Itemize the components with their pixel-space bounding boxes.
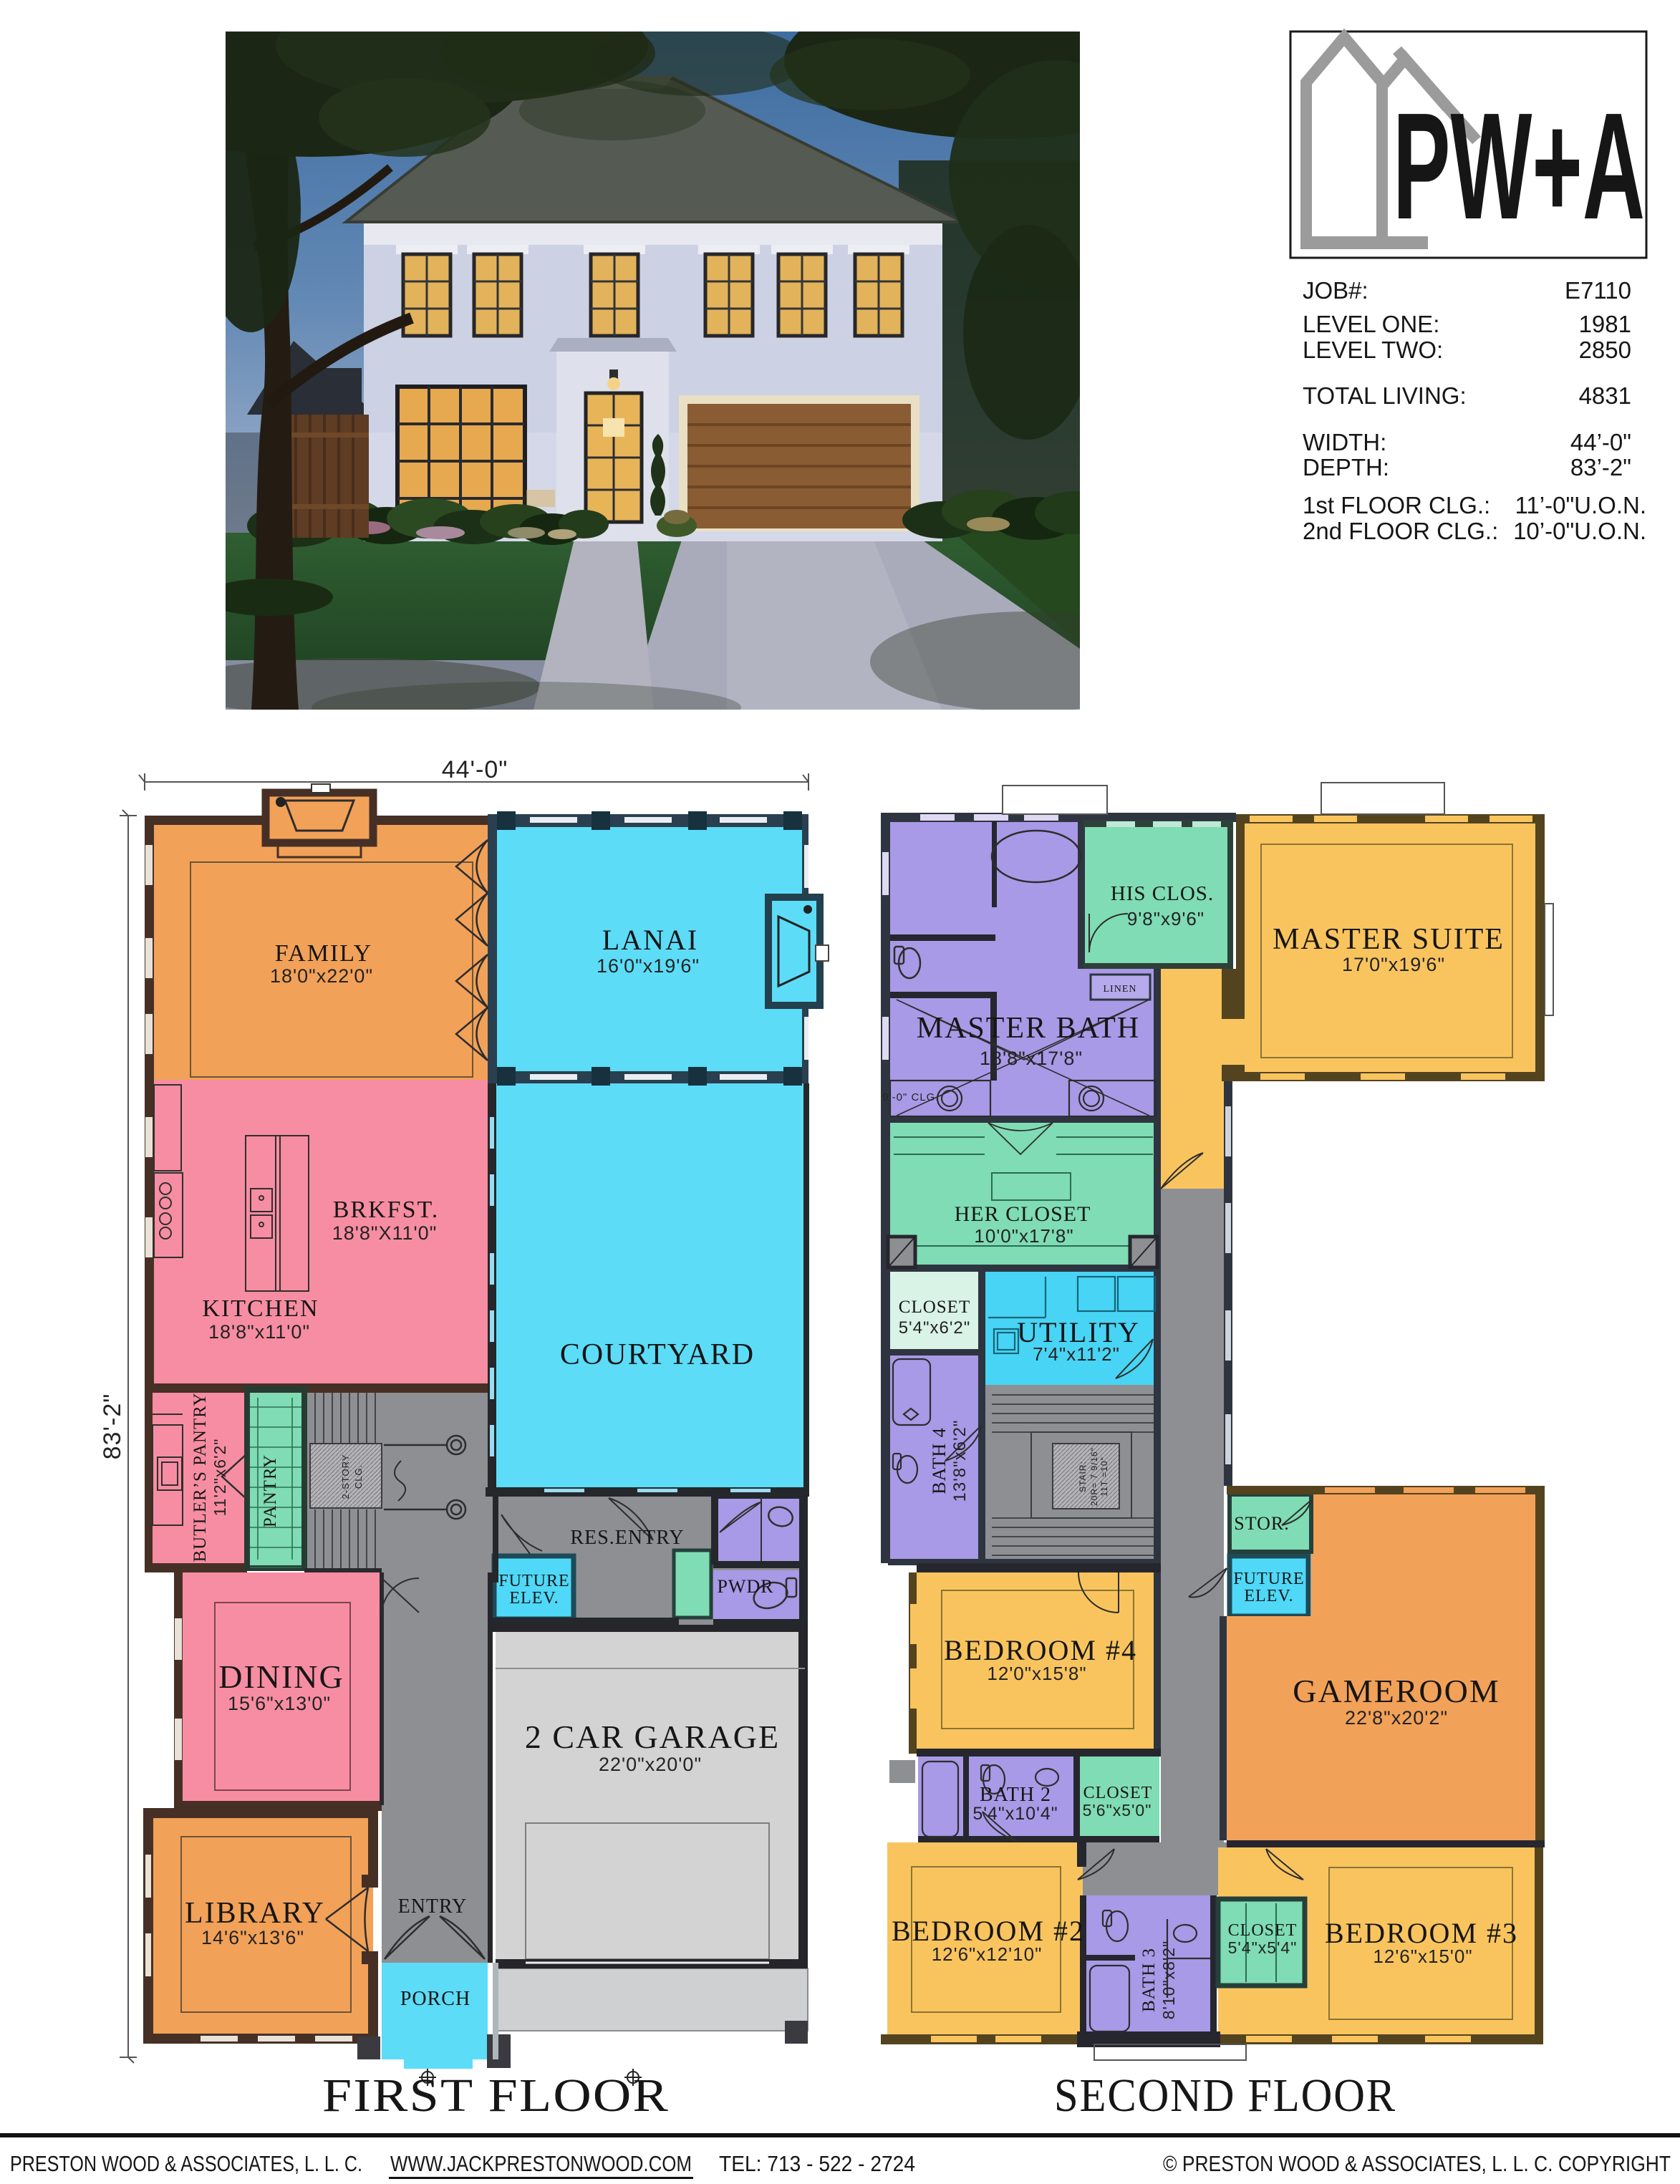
svg-text:BATH 4: BATH 4 <box>929 1427 950 1494</box>
svg-text:16'0"x19'6": 16'0"x19'6" <box>597 955 700 977</box>
svg-text:BUTLER’S PANTRY: BUTLER’S PANTRY <box>190 1392 210 1562</box>
svg-text:44’-0": 44’-0" <box>1570 429 1631 455</box>
svg-text:10’-0"U.O.N.: 10’-0"U.O.N. <box>1513 518 1646 544</box>
svg-text:44'-0": 44'-0" <box>442 756 508 783</box>
svg-text:PORCH: PORCH <box>400 1988 470 2010</box>
svg-text:12'6"x12'10": 12'6"x12'10" <box>932 1943 1043 1965</box>
svg-text:© PRESTON WOOD & ASSOCIATES, L: © PRESTON WOOD & ASSOCIATES, L. L. C. CO… <box>1163 2151 1671 2176</box>
svg-text:11T =10": 11T =10" <box>1099 1456 1109 1497</box>
svg-text:SECOND FLOOR: SECOND FLOOR <box>1054 2069 1396 2122</box>
svg-text:2 CAR GARAGE: 2 CAR GARAGE <box>525 1719 780 1755</box>
svg-text:12'6"x15'0": 12'6"x15'0" <box>1373 1946 1472 1967</box>
svg-text:20R= 7 9/16": 20R= 7 9/16" <box>1089 1447 1099 1506</box>
svg-text:LANAI: LANAI <box>602 924 698 956</box>
svg-text:MASTER BATH: MASTER BATH <box>917 1012 1141 1045</box>
svg-text:1981: 1981 <box>1579 311 1631 337</box>
svg-text:HIS CLOS.: HIS CLOS. <box>1111 882 1214 905</box>
svg-text:BEDROOM #3: BEDROOM #3 <box>1325 1917 1518 1949</box>
svg-text:18'0"x22'0": 18'0"x22'0" <box>270 965 373 987</box>
svg-text:HER CLOSET: HER CLOSET <box>955 1202 1091 1226</box>
svg-text:ENTRY: ENTRY <box>398 1895 468 1918</box>
svg-text:ELEV.: ELEV. <box>509 1589 559 1608</box>
svg-text:ELEV.: ELEV. <box>1244 1587 1293 1605</box>
svg-text:RES.ENTRY: RES.ENTRY <box>570 1527 684 1549</box>
svg-text:LEVEL ONE:: LEVEL ONE: <box>1303 311 1439 337</box>
svg-text:MASTER SUITE: MASTER SUITE <box>1273 923 1505 956</box>
svg-text:BRKFST.: BRKFST. <box>333 1197 439 1223</box>
svg-text:PWDR: PWDR <box>717 1576 773 1597</box>
svg-text:PANTRY: PANTRY <box>261 1454 280 1527</box>
svg-text:22'8"x20'2": 22'8"x20'2" <box>1345 1707 1448 1729</box>
svg-text:FAMILY: FAMILY <box>275 940 372 967</box>
svg-text:GAMEROOM: GAMEROOM <box>1293 1673 1500 1709</box>
svg-text:JOB#:: JOB#: <box>1303 277 1368 304</box>
svg-text:BEDROOM #2: BEDROOM #2 <box>892 1915 1085 1947</box>
svg-text:18'8"x17'8": 18'8"x17'8" <box>980 1048 1083 1069</box>
svg-text:STAIR:: STAIR: <box>1078 1461 1088 1492</box>
svg-text:1st FLOOR CLG.:: 1st FLOOR CLG.: <box>1303 492 1490 518</box>
svg-text:E7110: E7110 <box>1565 277 1631 304</box>
svg-text:LIBRARY: LIBRARY <box>185 1897 325 1930</box>
svg-text:TOTAL LIVING:: TOTAL LIVING: <box>1303 382 1467 409</box>
svg-text:LEVEL TWO:: LEVEL TWO: <box>1303 337 1443 363</box>
svg-text:CLOSET: CLOSET <box>899 1298 970 1317</box>
svg-text:FIRST FLOOR: FIRST FLOOR <box>322 2069 670 2122</box>
svg-text:KITCHEN: KITCHEN <box>202 1295 319 1322</box>
svg-text:18'8"X11'0": 18'8"X11'0" <box>332 1222 438 1244</box>
svg-text:WWW.JACKPRESTONWOOD.COM: WWW.JACKPRESTONWOOD.COM <box>390 2151 692 2176</box>
svg-text:13'8"x6'2": 13'8"x6'2" <box>950 1420 970 1502</box>
svg-text:8'10"x8'2": 8'10"x8'2" <box>1159 1941 1178 2020</box>
svg-text:83’-2": 83’-2" <box>1570 454 1631 480</box>
svg-text:PW+A: PW+A <box>1393 81 1645 251</box>
svg-text:83'-2": 83'-2" <box>99 1393 126 1460</box>
svg-text:5'6"x5'0": 5'6"x5'0" <box>1083 1801 1152 1820</box>
svg-text:FUTURE: FUTURE <box>498 1572 569 1590</box>
svg-text:CLOSET: CLOSET <box>1083 1784 1153 1802</box>
svg-text:12'0"x15'8": 12'0"x15'8" <box>987 1663 1086 1684</box>
svg-text:22'0"x20'0": 22'0"x20'0" <box>599 1754 702 1775</box>
svg-text:17'0"x19'6": 17'0"x19'6" <box>1342 954 1445 975</box>
svg-text:STOR.: STOR. <box>1234 1513 1290 1534</box>
svg-text:11'2"x6'2": 11'2"x6'2" <box>211 1439 229 1517</box>
svg-text:LINEN: LINEN <box>1104 984 1137 995</box>
svg-text:2850: 2850 <box>1579 337 1631 363</box>
svg-text:9'-0" CLG.: 9'-0" CLG. <box>882 1091 939 1103</box>
svg-text:WIDTH:: WIDTH: <box>1303 429 1386 455</box>
svg-text:FUTURE: FUTURE <box>1233 1570 1304 1588</box>
svg-text:DINING: DINING <box>218 1658 344 1695</box>
svg-text:BATH 2: BATH 2 <box>980 1784 1051 1806</box>
svg-text:7'4"x11'2": 7'4"x11'2" <box>1033 1343 1120 1365</box>
svg-text:18'8"x11'0": 18'8"x11'0" <box>208 1321 310 1343</box>
svg-text:15'6"x13'0": 15'6"x13'0" <box>228 1693 331 1714</box>
svg-text:9'8"x9'6": 9'8"x9'6" <box>1127 908 1205 929</box>
svg-text:10'0"x17'8": 10'0"x17'8" <box>974 1225 1073 1247</box>
svg-text:14'6"x13'6": 14'6"x13'6" <box>201 1927 304 1948</box>
svg-text:11’-0"U.O.N.: 11’-0"U.O.N. <box>1515 492 1646 518</box>
svg-text:2-STORY: 2-STORY <box>340 1454 351 1499</box>
svg-text:2nd FLOOR CLG.:: 2nd FLOOR CLG.: <box>1303 518 1498 544</box>
svg-text:5'4"x10'4": 5'4"x10'4" <box>972 1804 1058 1824</box>
svg-text:5'4"x6'2": 5'4"x6'2" <box>899 1318 971 1338</box>
svg-text:4831: 4831 <box>1579 382 1631 409</box>
svg-text:CLOSET: CLOSET <box>1228 1921 1298 1940</box>
svg-text:PRESTON WOOD & ASSOCIATES, L.: PRESTON WOOD & ASSOCIATES, L. L. C. <box>10 2151 362 2176</box>
svg-text:DEPTH:: DEPTH: <box>1303 454 1389 480</box>
svg-text:COURTYARD: COURTYARD <box>560 1338 755 1371</box>
svg-text:TEL: 713 - 522 - 2724: TEL: 713 - 522 - 2724 <box>719 2151 915 2176</box>
svg-text:BEDROOM #4: BEDROOM #4 <box>944 1634 1137 1666</box>
svg-text:CLG.: CLG. <box>353 1464 364 1489</box>
svg-text:5'4"x5'4": 5'4"x5'4" <box>1228 1938 1298 1957</box>
svg-text:BATH 3: BATH 3 <box>1139 1948 1159 2012</box>
